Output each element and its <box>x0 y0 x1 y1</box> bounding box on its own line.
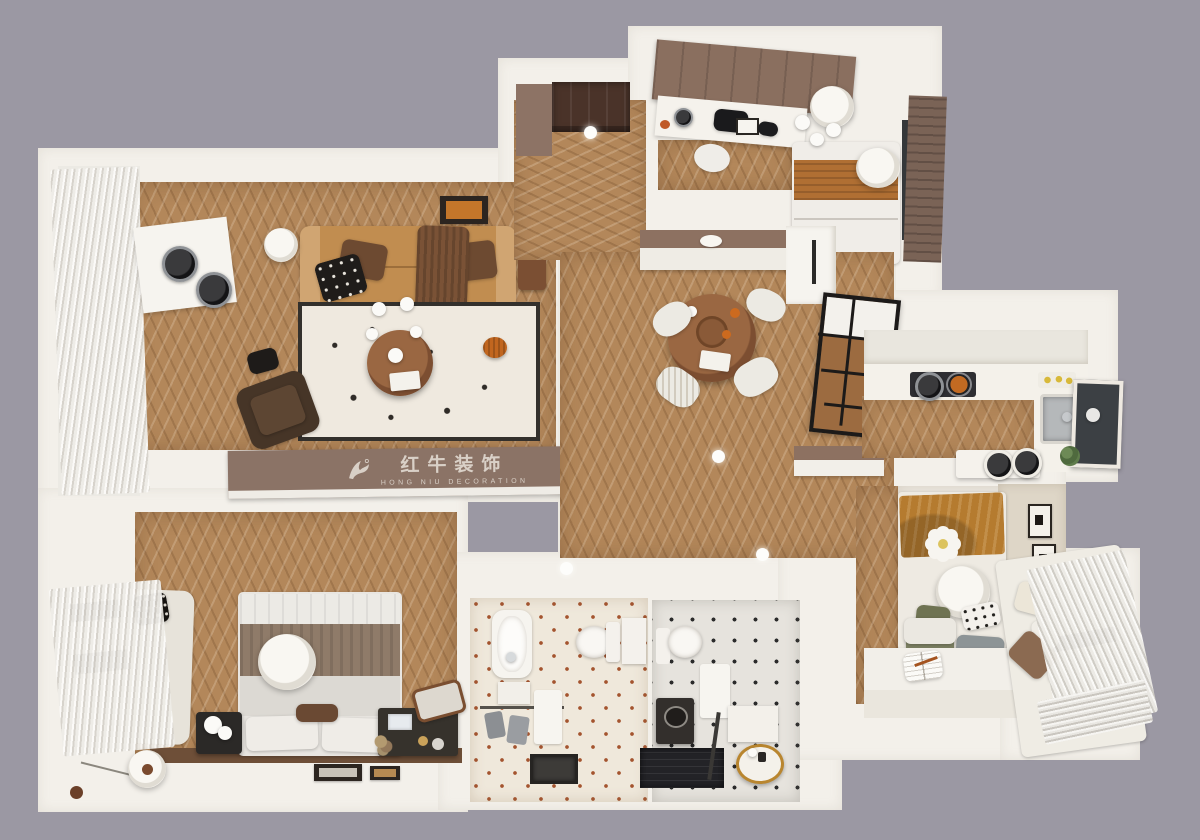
master-frame-2 <box>370 766 400 780</box>
table-orange-2 <box>722 330 731 339</box>
table-orange-1 <box>730 308 740 318</box>
pendant-bulb-2 <box>826 123 841 137</box>
dresser-decor-plate <box>432 738 444 750</box>
master-frame-1-art <box>319 768 357 777</box>
dresser-decor-gold <box>418 736 428 746</box>
pendant-bulb-1 <box>795 115 810 130</box>
shower-fixture-2 <box>506 715 530 746</box>
perfume-bottle-2 <box>758 752 766 762</box>
master-ceiling-lamp <box>258 634 316 690</box>
desk-lamp <box>674 108 693 127</box>
floor-plan-render: 红牛装饰 HONG NIU DECORATION <box>0 0 1200 840</box>
dried-plant <box>372 732 394 756</box>
bath-mat <box>534 690 562 744</box>
sideboard-bowl <box>700 235 722 247</box>
dark-vanity-sink <box>664 706 688 728</box>
master-frame-1 <box>314 764 362 781</box>
master-frame-2-art <box>374 769 396 777</box>
sofa-armrest-right <box>496 226 516 310</box>
candle-on-table <box>388 348 403 363</box>
hall-cabinet-body <box>794 460 884 476</box>
watermark-chinese: 红牛装饰 <box>400 449 508 478</box>
black-basin-right <box>196 272 232 308</box>
second-bath-mat <box>700 664 730 718</box>
toilet-second-bowl <box>668 626 702 658</box>
wall-art-orange <box>446 201 482 219</box>
guest-ceiling-lamp-2 <box>856 148 900 188</box>
pendant-lamp-anchor <box>70 786 83 799</box>
candle-4 <box>410 326 422 338</box>
pendant-bulb-3 <box>810 133 824 146</box>
pan-black <box>915 372 944 401</box>
coffee-table-book <box>389 370 421 391</box>
floor-lamp <box>264 228 298 262</box>
study-roman-blinds <box>903 95 947 262</box>
desk-mug <box>660 120 670 129</box>
wall-art-frame <box>440 196 488 224</box>
black-basin-left <box>162 246 198 282</box>
pumpkin-ottoman <box>483 337 507 358</box>
bathtub-faucet <box>506 652 516 662</box>
daisy-pillow-center <box>938 539 948 549</box>
candle-3 <box>366 328 378 340</box>
open-notebook <box>902 649 944 682</box>
master-pillow-brown-small <box>296 704 338 722</box>
window-light-reflection <box>1086 408 1100 422</box>
entry-side-panel <box>516 84 552 156</box>
watermark-text-group: 红牛装饰 HONG NIU DECORATION <box>380 449 528 487</box>
candle-2 <box>400 297 414 311</box>
dresser-screen <box>388 714 412 730</box>
kids-frame-1-art <box>1035 515 1043 525</box>
guest-bed-duvet-crease <box>794 218 898 220</box>
floor-drain <box>530 754 578 784</box>
desk-photo-frames <box>736 118 759 135</box>
master-window-curtains <box>49 579 175 756</box>
bath-vanity-cabinet <box>622 618 646 664</box>
kids-pillow-white <box>904 618 956 644</box>
hall-ceiling-light-1 <box>712 450 725 463</box>
pot-orange <box>946 372 972 397</box>
kitchen-plant <box>1060 446 1080 466</box>
hall-ceiling-light-3 <box>560 562 573 575</box>
living-balcony-curtains <box>50 167 149 496</box>
pendant-lamp-center <box>142 764 153 775</box>
sideboard-body <box>640 248 788 270</box>
bathtub-inner <box>497 616 527 672</box>
kids-frame-1 <box>1028 504 1052 538</box>
kitchen-upper-cabinets <box>864 330 1088 366</box>
second-bath-counter <box>728 706 778 742</box>
kitchen-floor <box>862 396 1034 458</box>
gold-tray-table <box>736 744 784 784</box>
sink-faucet <box>1062 412 1072 422</box>
guest-ceiling-lamp-1 <box>810 86 854 128</box>
perfume-bottle-1 <box>748 748 757 757</box>
hall-ceiling-light-2 <box>756 548 769 561</box>
candle-1 <box>372 302 386 316</box>
bull-icon <box>345 458 371 480</box>
toilet-main-tank <box>606 622 620 662</box>
bath-shelf <box>498 682 530 704</box>
entry-ceiling-light <box>584 126 597 139</box>
nightstand-decor-2 <box>218 726 232 740</box>
fridge-handle <box>812 240 816 284</box>
watermark-english: HONG NIU DECORATION <box>381 478 529 487</box>
kids-lower-cabinet <box>864 690 1022 718</box>
lemon-tray <box>1038 372 1076 388</box>
island-stool-1 <box>984 450 1014 480</box>
island-stool-2 <box>1012 448 1042 478</box>
master-bed-fold <box>240 594 400 626</box>
front-door <box>552 82 630 132</box>
